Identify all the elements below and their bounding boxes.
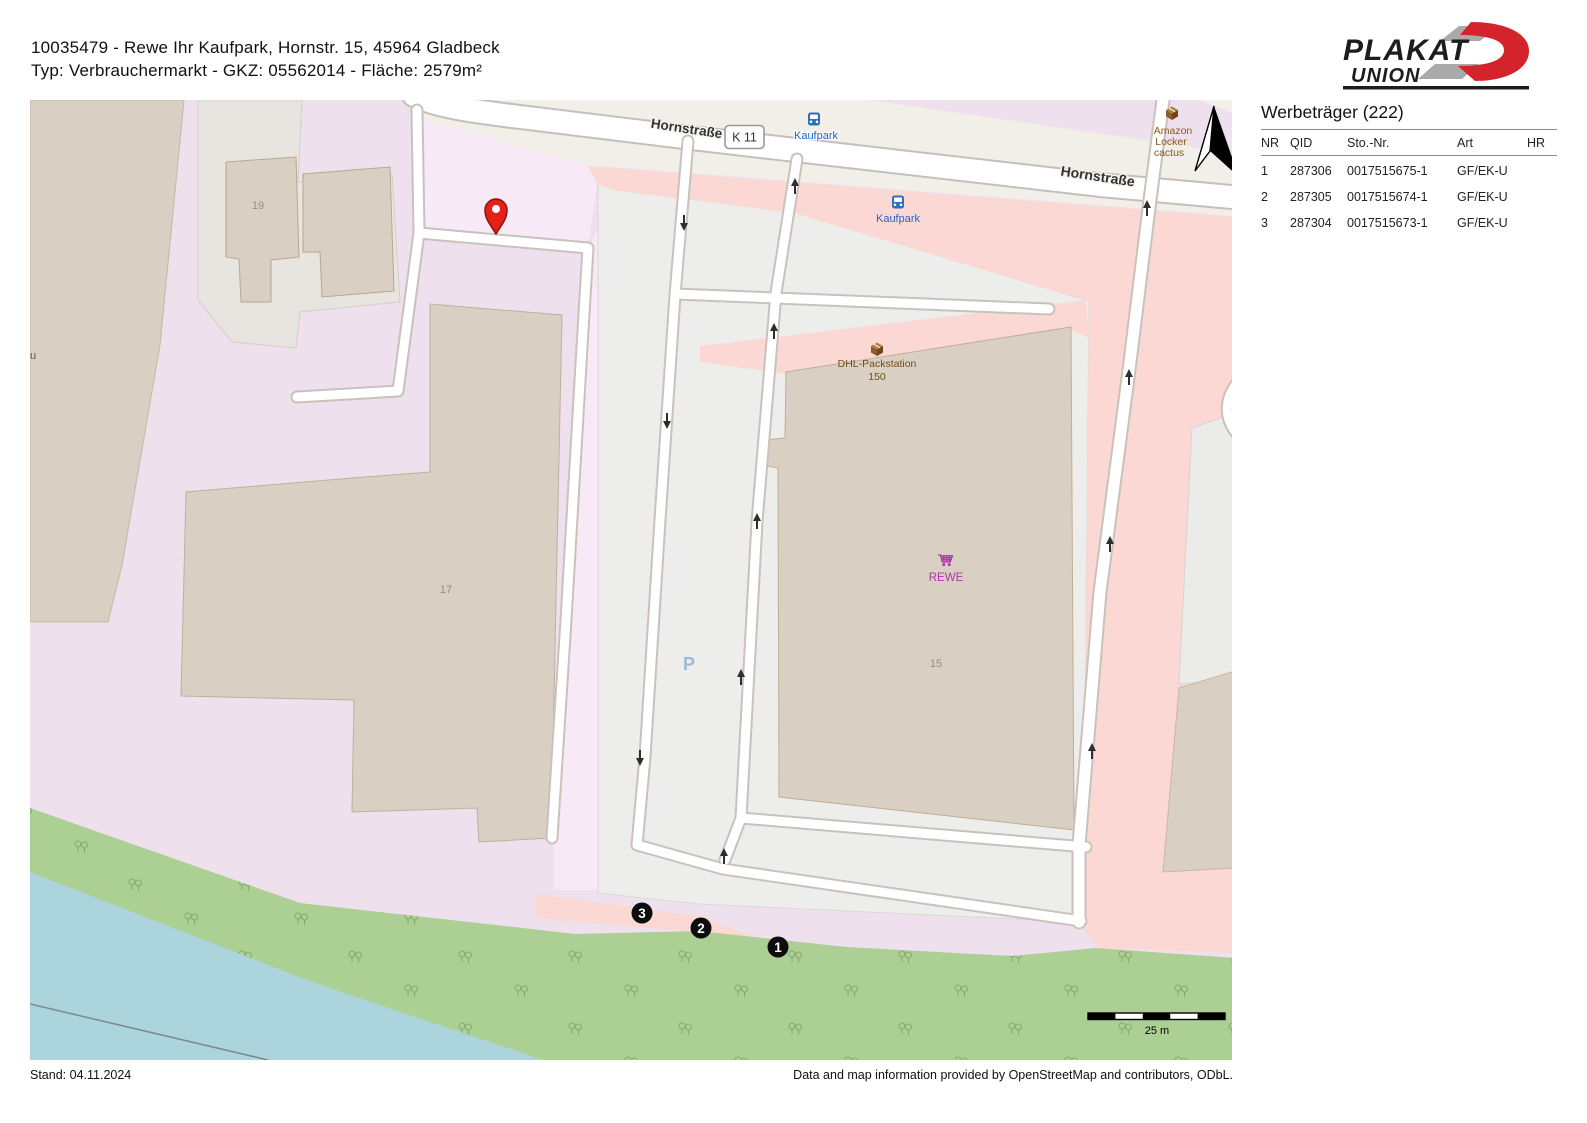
site-marker-1: 1 xyxy=(768,937,789,958)
housenumber: 19 xyxy=(252,200,264,212)
cell-hr xyxy=(1527,182,1557,208)
report-page: 10035479 - Rewe Ihr Kaufpark, Hornstr. 1… xyxy=(0,0,1587,1123)
werbetraeger-panel: Werbeträger (222) NR QID Sto.-Nr. Art HR… xyxy=(1261,102,1557,234)
page-title: 10035479 - Rewe Ihr Kaufpark, Hornstr. 1… xyxy=(31,38,500,58)
logo-text-union: UNION xyxy=(1351,65,1420,87)
cell-qid: 287304 xyxy=(1290,208,1347,234)
col-qid: QID xyxy=(1290,130,1347,156)
col-stonr: Sto.-Nr. xyxy=(1347,130,1457,156)
cell-qid: 287305 xyxy=(1290,182,1347,208)
col-nr: NR xyxy=(1261,130,1290,156)
logo-text-plakat: PLAKAT xyxy=(1343,34,1470,67)
table-row: 2 287305 0017515674-1 GF/EK-U xyxy=(1261,182,1557,208)
col-hr: HR xyxy=(1527,130,1557,156)
cell-stonr: 0017515673-1 xyxy=(1347,208,1457,234)
table-row: 3 287304 0017515673-1 GF/EK-U xyxy=(1261,208,1557,234)
svg-text:K 11: K 11 xyxy=(732,131,757,145)
rewe-label: REWE xyxy=(929,572,964,584)
bus-stop-icon xyxy=(892,196,904,209)
amazon-locker-label: cactus xyxy=(1154,147,1184,159)
bus-stop-label: Kaufpark xyxy=(794,130,839,142)
housenumber: 15 xyxy=(930,658,942,670)
scale-label: 25 m xyxy=(1145,1025,1169,1037)
date-stamp: Stand: 04.11.2024 xyxy=(30,1068,131,1082)
page-subtitle: Typ: Verbrauchermarkt - GKZ: 05562014 - … xyxy=(31,61,482,81)
table-header-row: NR QID Sto.-Nr. Art HR xyxy=(1261,130,1557,156)
cell-stonr: 0017515674-1 xyxy=(1347,182,1457,208)
bus-stop-label: Kaufpark xyxy=(876,213,921,225)
building-15-rewe xyxy=(763,327,1074,830)
col-art: Art xyxy=(1457,130,1527,156)
parking-label: P xyxy=(683,654,695,674)
road-ref-badge: K 11 xyxy=(725,126,764,149)
dhl-packstation-label: 150 xyxy=(868,371,886,383)
cell-nr: 3 xyxy=(1261,208,1290,234)
cell-art: GF/EK-U xyxy=(1457,208,1527,234)
site-marker-2: 2 xyxy=(691,918,712,939)
table-row: 1 287306 0017515675-1 GF/EK-U xyxy=(1261,156,1557,183)
svg-text:3: 3 xyxy=(638,906,646,921)
cell-hr xyxy=(1527,208,1557,234)
cell-qid: 287306 xyxy=(1290,156,1347,183)
cell-nr: 1 xyxy=(1261,156,1290,183)
logo-red-swoosh xyxy=(1458,22,1529,81)
site-marker-3: 3 xyxy=(632,903,653,924)
cell-stonr: 0017515675-1 xyxy=(1347,156,1457,183)
edge-text: u xyxy=(30,350,36,362)
dhl-packstation-label: DHL-Packstation xyxy=(838,358,917,370)
cell-nr: 2 xyxy=(1261,182,1290,208)
cell-hr xyxy=(1527,156,1557,183)
svg-text:1: 1 xyxy=(774,940,782,955)
cell-art: GF/EK-U xyxy=(1457,156,1527,183)
plakat-union-logo: PLAKAT UNION xyxy=(1341,20,1533,92)
attribution-text: Data and map information provided by Ope… xyxy=(650,1068,1233,1082)
bus-stop-icon xyxy=(808,113,820,126)
werbetraeger-table: NR QID Sto.-Nr. Art HR 1 287306 00175156… xyxy=(1261,130,1557,234)
housenumber: 17 xyxy=(440,584,452,596)
logo-underline xyxy=(1343,86,1529,90)
map-canvas: Hornstraße Hornstraße K 11 Kaufpark Kauf… xyxy=(30,100,1232,1060)
cell-art: GF/EK-U xyxy=(1457,182,1527,208)
map-viewport[interactable]: Hornstraße Hornstraße K 11 Kaufpark Kauf… xyxy=(30,100,1232,1060)
svg-text:2: 2 xyxy=(697,921,705,936)
panel-title: Werbeträger (222) xyxy=(1261,102,1557,130)
